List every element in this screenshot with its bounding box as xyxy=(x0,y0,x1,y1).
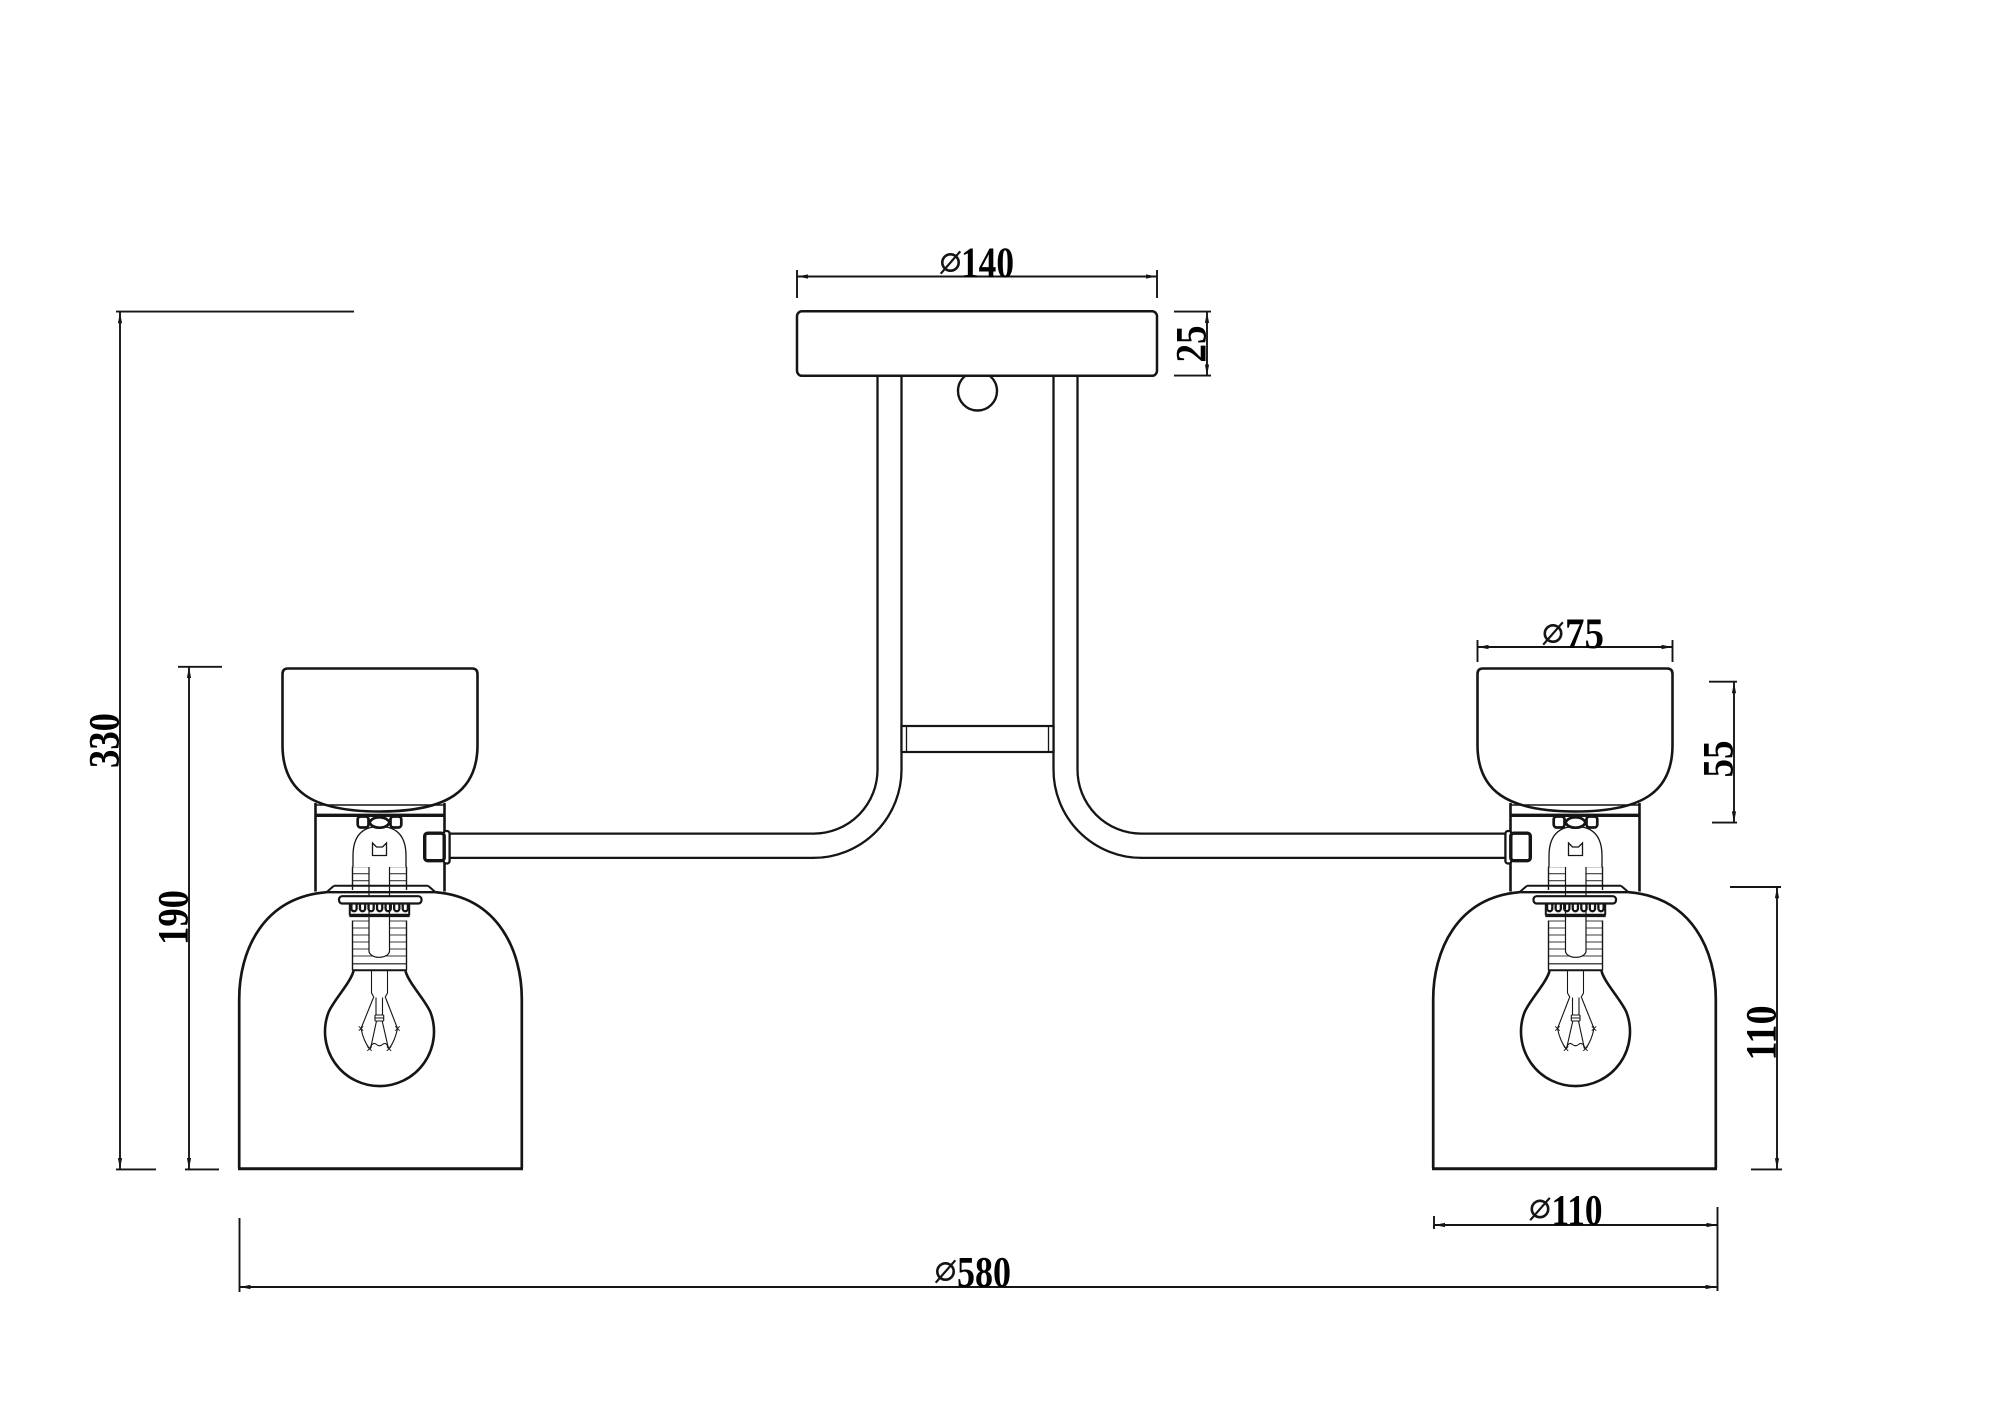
svg-text:110: 110 xyxy=(1739,1006,1786,1061)
svg-text:330: 330 xyxy=(82,713,129,768)
svg-text:580: 580 xyxy=(957,1250,1011,1297)
svg-text:140: 140 xyxy=(961,240,1014,287)
svg-text:75: 75 xyxy=(1565,611,1604,658)
svg-text:110: 110 xyxy=(1552,1188,1603,1235)
svg-text:55: 55 xyxy=(1696,741,1743,778)
svg-text:25: 25 xyxy=(1169,326,1216,363)
svg-text:190: 190 xyxy=(151,890,198,945)
